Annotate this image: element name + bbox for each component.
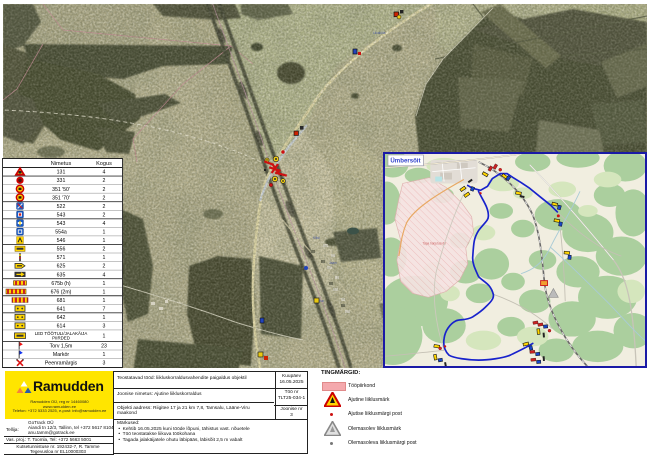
- svg-text:625: 625: [57, 263, 66, 269]
- svg-text:614: 614: [57, 323, 66, 329]
- svg-text:23: 23: [101, 343, 107, 349]
- svg-text:1: 1: [103, 333, 106, 339]
- svg-text:642: 642: [57, 315, 66, 321]
- svg-text:Jaam: Jaam: [329, 261, 337, 265]
- svg-text:Nimetus: Nimetus: [51, 161, 72, 167]
- svg-text:Torv 1,5m: Torv 1,5m: [50, 343, 73, 349]
- svg-text:1: 1: [103, 229, 106, 235]
- svg-text:7: 7: [103, 306, 106, 312]
- svg-text:556: 556: [57, 246, 66, 252]
- svg-text:635: 635: [57, 272, 66, 278]
- svg-text:681: 681: [57, 297, 66, 303]
- svg-text:546: 546: [57, 238, 66, 244]
- svg-text:2: 2: [103, 186, 106, 192]
- svg-text:2: 2: [103, 203, 106, 209]
- svg-text:1: 1: [103, 352, 106, 358]
- svg-text:1: 1: [103, 238, 106, 244]
- svg-text:Peenramärgis: Peenramärgis: [45, 360, 78, 366]
- svg-text:4: 4: [103, 221, 106, 227]
- svg-text:1: 1: [103, 297, 106, 303]
- svg-text:PIIRDED: PIIRDED: [52, 335, 70, 340]
- svg-text:1: 1: [103, 255, 106, 261]
- svg-text:Tapa harjutusväli: Tapa harjutusväli: [422, 241, 446, 245]
- svg-text:Markör: Markör: [53, 352, 69, 358]
- svg-text:2: 2: [103, 178, 106, 184]
- svg-text:3: 3: [103, 360, 106, 366]
- svg-text:2: 2: [103, 212, 106, 218]
- svg-text:Kogus: Kogus: [96, 161, 112, 167]
- svg-text:351 '50': 351 '50': [52, 186, 70, 192]
- svg-text:Kiltsi: Kiltsi: [313, 236, 320, 240]
- svg-text:4: 4: [103, 169, 106, 175]
- svg-text:554a: 554a: [55, 229, 67, 235]
- svg-text:571: 571: [57, 255, 66, 261]
- svg-text:543: 543: [57, 221, 66, 227]
- svg-text:522: 522: [57, 203, 66, 209]
- svg-text:1: 1: [103, 315, 106, 321]
- svg-text:131: 131: [57, 169, 66, 175]
- svg-text:351 '70': 351 '70': [52, 195, 70, 201]
- svg-text:641: 641: [57, 306, 66, 312]
- svg-text:1: 1: [103, 289, 106, 295]
- svg-text:331: 331: [57, 178, 66, 184]
- svg-text:2: 2: [103, 263, 106, 269]
- svg-text:4: 4: [103, 272, 106, 278]
- svg-text:3: 3: [103, 323, 106, 329]
- svg-text:Ümbersõit: Ümbersõit: [390, 158, 420, 165]
- svg-text:Liivaküla: Liivaküla: [373, 31, 386, 35]
- svg-text:1: 1: [103, 280, 106, 286]
- svg-text:2: 2: [103, 246, 106, 252]
- svg-text:543: 543: [57, 212, 66, 218]
- svg-text:676 (2m): 676 (2m): [51, 289, 72, 295]
- svg-text:2: 2: [103, 195, 106, 201]
- svg-text:675b (h): 675b (h): [51, 280, 71, 286]
